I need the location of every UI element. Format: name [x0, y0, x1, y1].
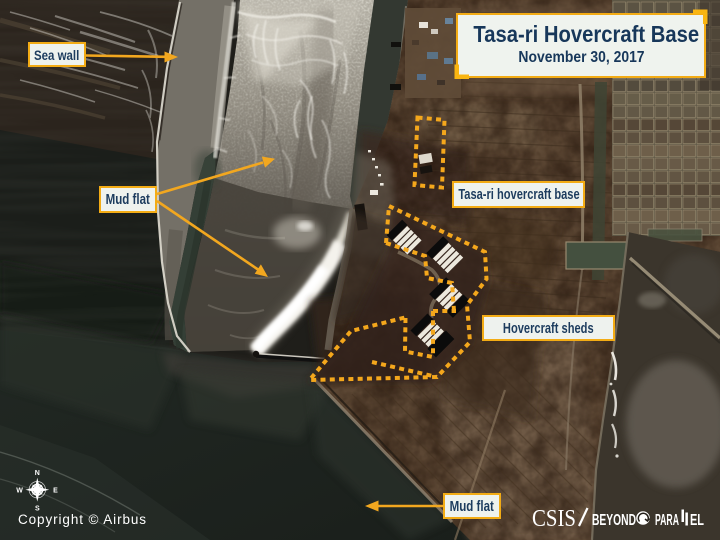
svg-text:BEYOND: BEYOND	[592, 512, 636, 529]
svg-text:EL: EL	[690, 512, 704, 529]
svg-text:W: W	[16, 487, 23, 494]
svg-text:N: N	[35, 470, 40, 477]
svg-text:PARA: PARA	[655, 512, 679, 529]
svg-text:CSIS: CSIS	[532, 506, 576, 532]
svg-text:Copyright © Airbus: Copyright © Airbus	[18, 512, 147, 527]
svg-text:E: E	[53, 487, 58, 494]
